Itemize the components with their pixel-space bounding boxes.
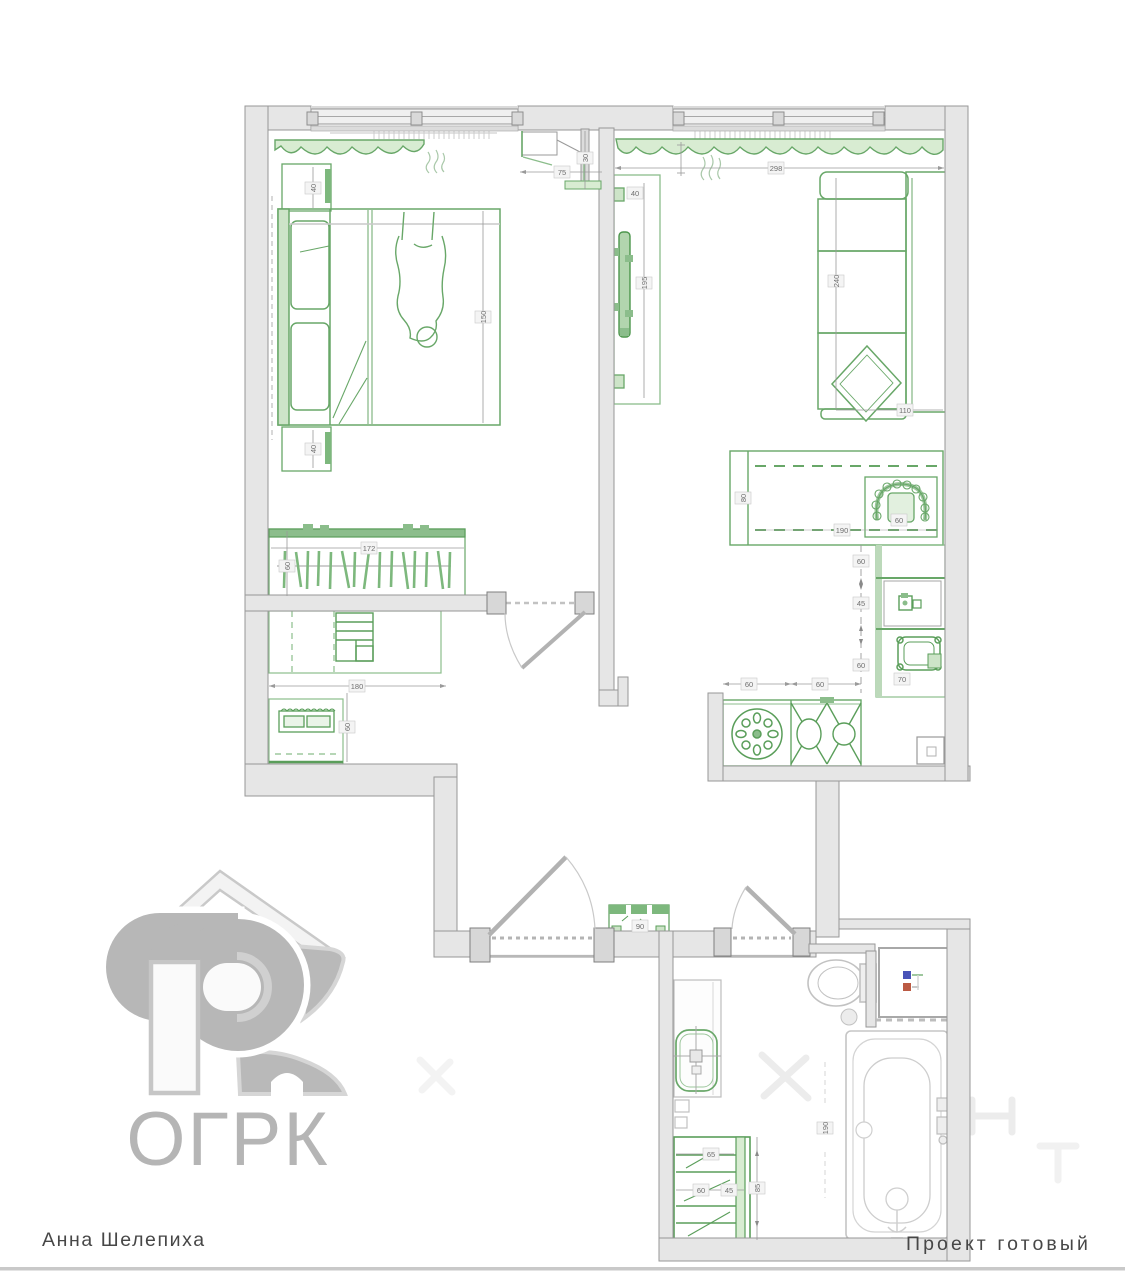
svg-text:40: 40 — [309, 184, 318, 192]
svg-text:60: 60 — [343, 723, 352, 731]
svg-text:Анна Шелепиха: Анна Шелепиха — [42, 1229, 206, 1251]
svg-text:65: 65 — [707, 1150, 715, 1159]
svg-text:298: 298 — [770, 164, 783, 173]
svg-text:40: 40 — [631, 189, 639, 198]
svg-text:60: 60 — [816, 680, 824, 689]
svg-text:150: 150 — [479, 311, 488, 324]
svg-text:ОГРК: ОГРК — [126, 1097, 329, 1182]
svg-text:45: 45 — [725, 1186, 733, 1195]
svg-text:60: 60 — [857, 661, 865, 670]
svg-text:190: 190 — [821, 1122, 830, 1135]
svg-text:60: 60 — [697, 1186, 705, 1195]
svg-text:60: 60 — [283, 562, 292, 570]
svg-text:180: 180 — [351, 682, 364, 691]
svg-text:30: 30 — [581, 154, 590, 162]
svg-text:190: 190 — [836, 526, 849, 535]
svg-text:45: 45 — [857, 599, 865, 608]
svg-text:240: 240 — [832, 275, 841, 288]
svg-text:40: 40 — [309, 445, 318, 453]
svg-text:110: 110 — [899, 406, 911, 415]
svg-text:90: 90 — [636, 922, 644, 931]
svg-text:70: 70 — [898, 675, 906, 684]
svg-text:60: 60 — [857, 557, 865, 566]
svg-text:Проект готовый: Проект готовый — [906, 1233, 1091, 1255]
svg-text:80: 80 — [739, 494, 748, 502]
svg-text:75: 75 — [558, 168, 566, 177]
svg-text:60: 60 — [745, 680, 753, 689]
svg-text:85: 85 — [753, 1184, 762, 1192]
svg-text:172: 172 — [363, 544, 376, 553]
svg-text:195: 195 — [640, 277, 649, 290]
svg-text:60: 60 — [895, 516, 903, 525]
